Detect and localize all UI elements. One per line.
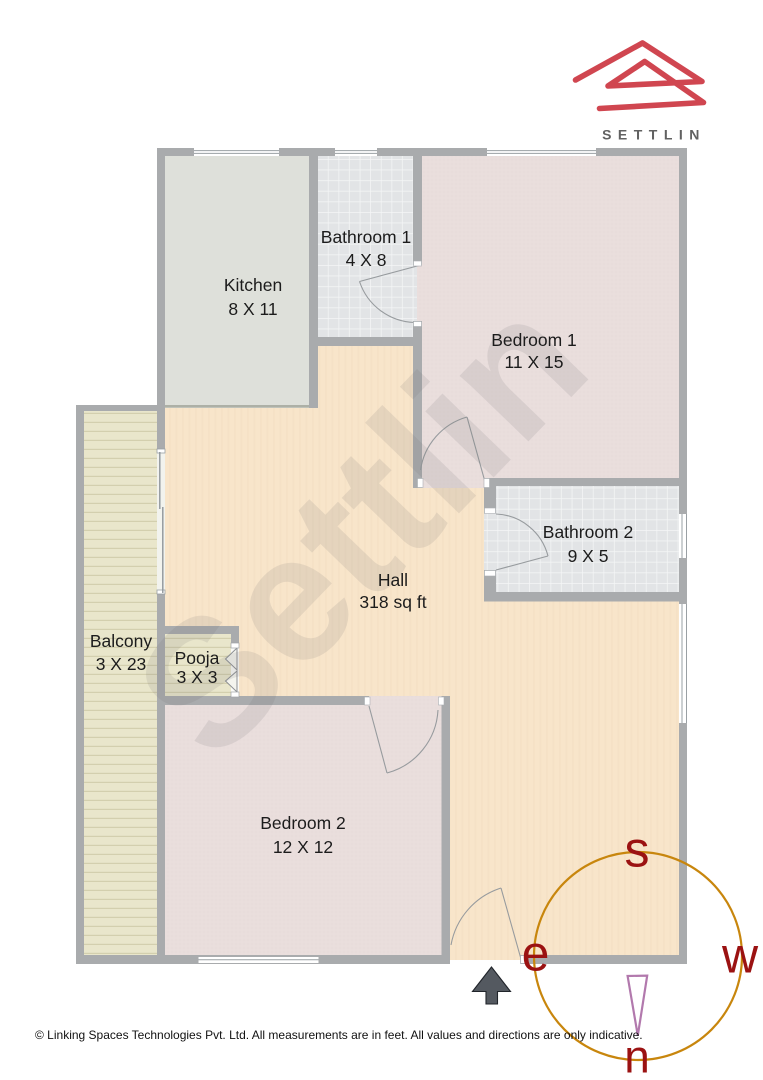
svg-text:11 X 15: 11 X 15 — [504, 352, 563, 372]
svg-text:12 X 12: 12 X 12 — [273, 837, 333, 857]
svg-text:Pooja: Pooja — [175, 648, 220, 668]
svg-text:9 X 5: 9 X 5 — [568, 546, 609, 566]
svg-text:SETTLIN: SETTLIN — [602, 127, 706, 143]
svg-text:Bathroom 2: Bathroom 2 — [543, 522, 633, 542]
svg-text:Bedroom 1: Bedroom 1 — [491, 330, 577, 350]
svg-text:Bathroom 1: Bathroom 1 — [321, 227, 411, 247]
svg-text:© Linking Spaces Technologies: © Linking Spaces Technologies Pvt. Ltd. … — [35, 1028, 643, 1042]
svg-text:Kitchen: Kitchen — [224, 275, 282, 295]
svg-text:Bedroom 2: Bedroom 2 — [260, 813, 346, 833]
svg-text:318 sq ft: 318 sq ft — [359, 592, 426, 612]
svg-text:3 X 3: 3 X 3 — [177, 667, 218, 687]
svg-text:s: s — [625, 822, 650, 878]
svg-text:w: w — [721, 928, 759, 984]
svg-text:Balcony: Balcony — [90, 631, 153, 651]
svg-text:4 X 8: 4 X 8 — [346, 250, 387, 270]
svg-text:3 X 23: 3 X 23 — [96, 654, 147, 674]
svg-text:8 X 11: 8 X 11 — [228, 299, 277, 319]
svg-text:e: e — [522, 926, 550, 982]
svg-text:Hall: Hall — [378, 570, 408, 590]
